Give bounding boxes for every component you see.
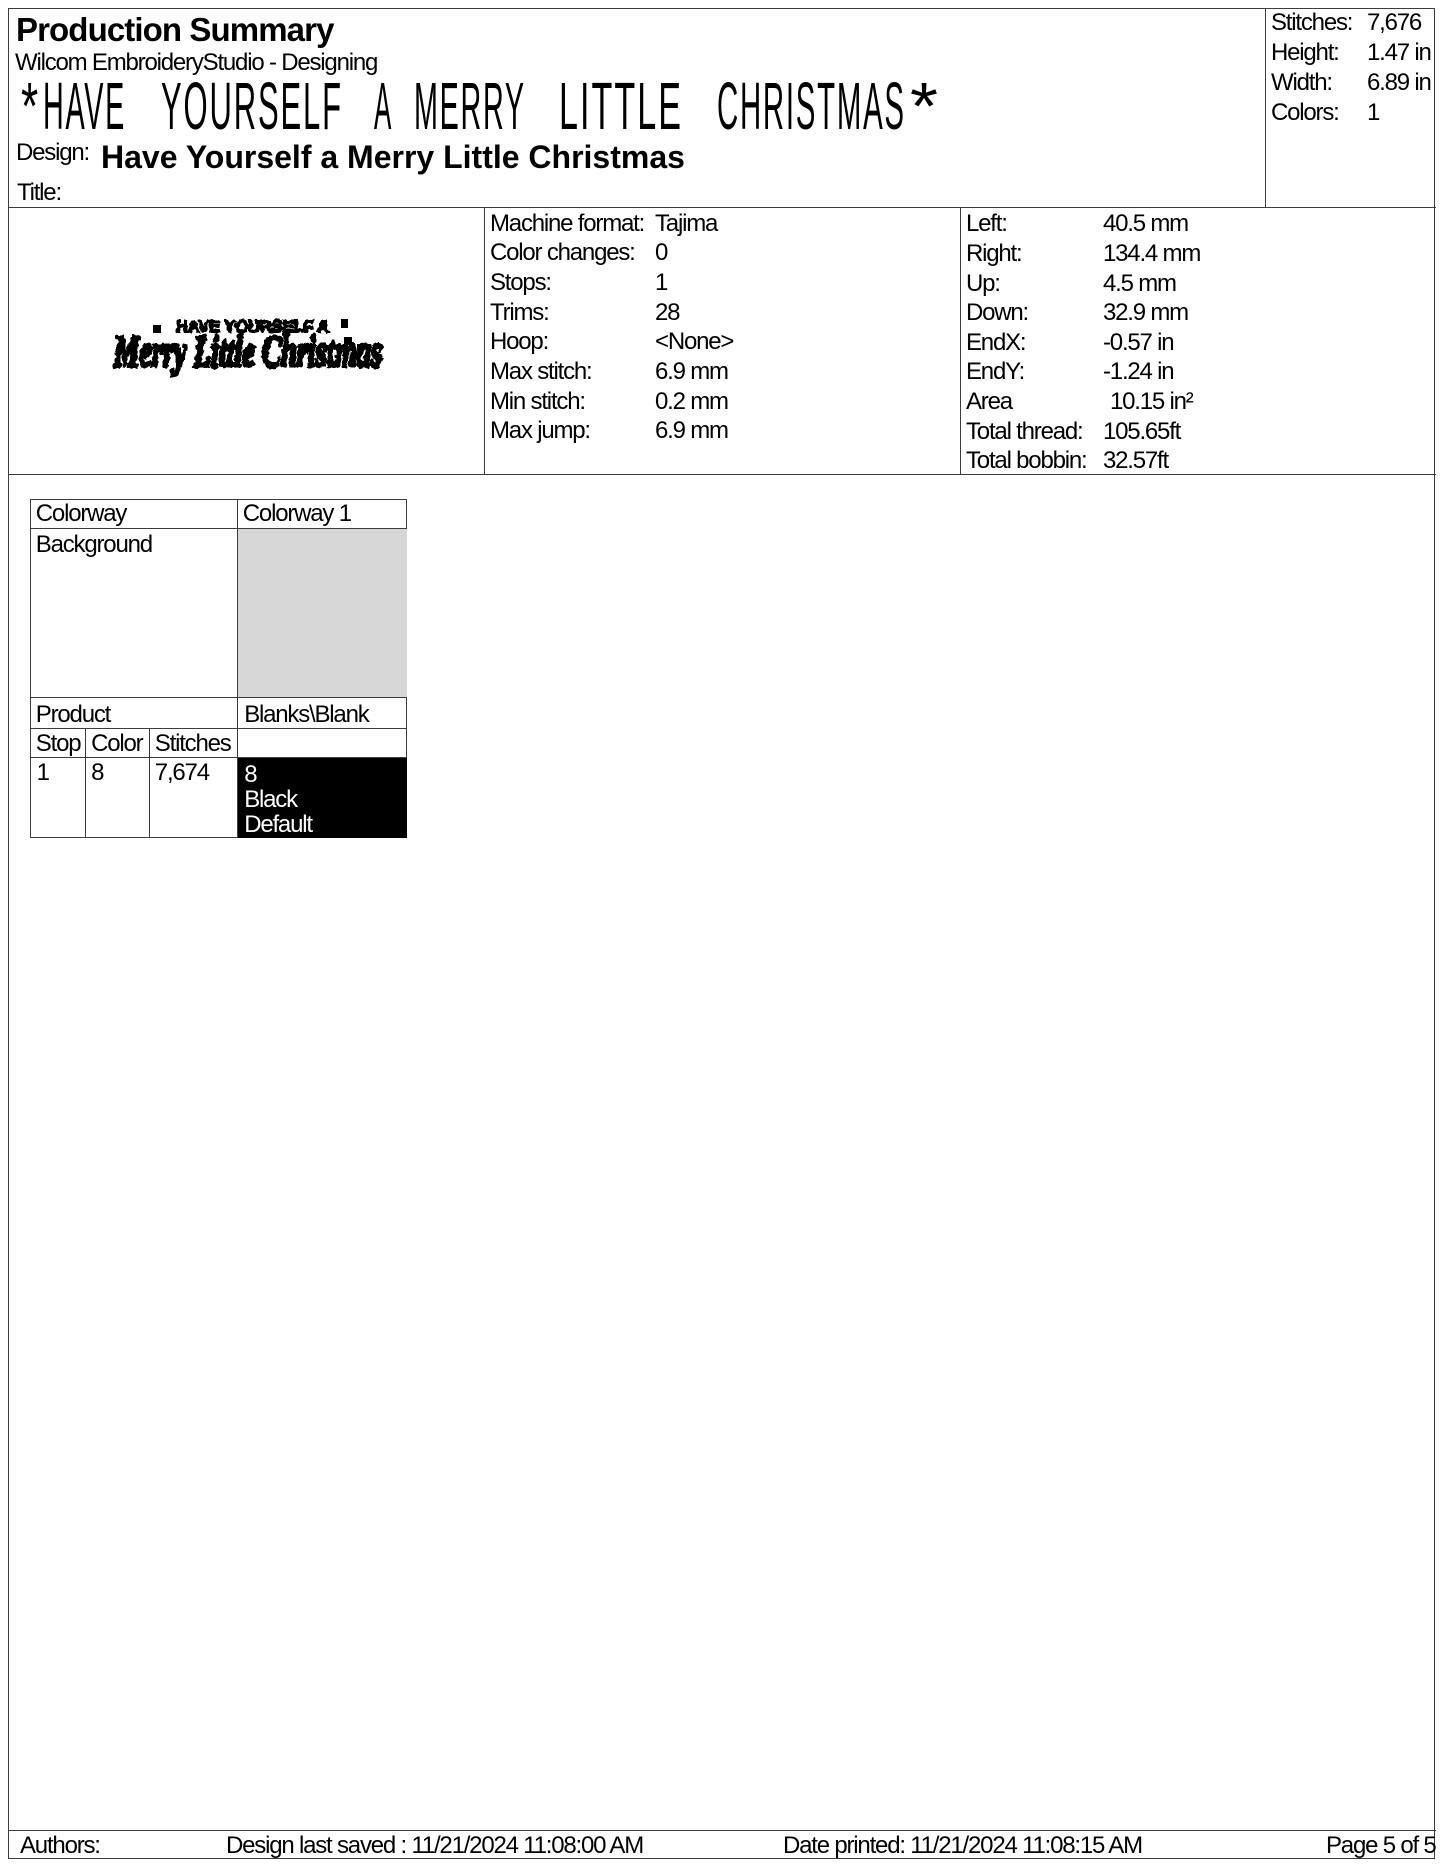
svg-text:Merry Little Christmas: Merry Little Christmas xyxy=(113,327,382,376)
